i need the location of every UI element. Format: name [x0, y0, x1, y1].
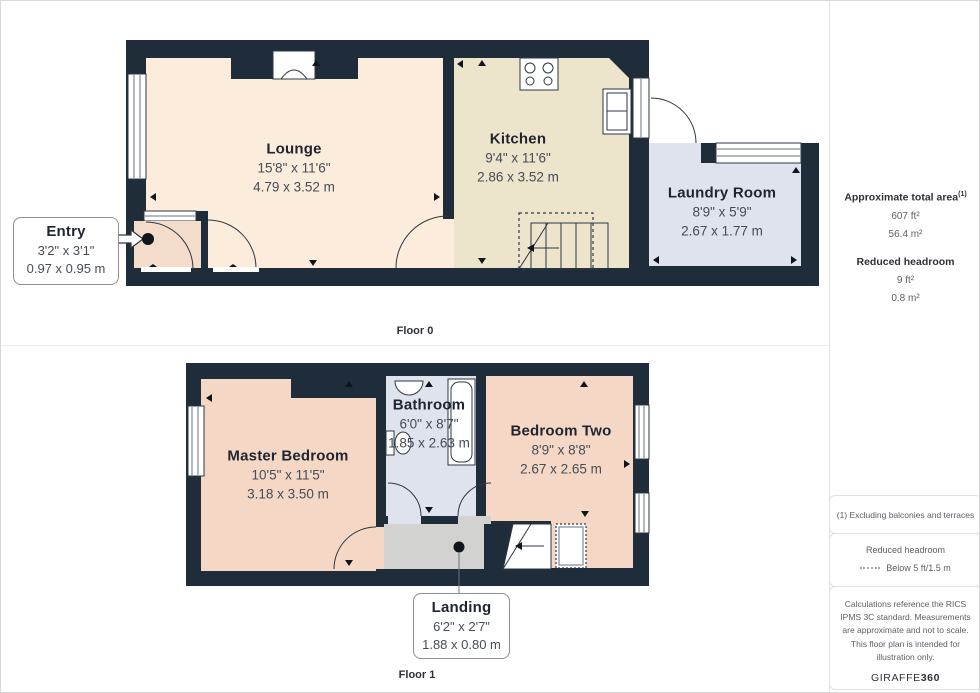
entry-callout: Entry 3'2" x 3'1" 0.97 x 0.95 m: [13, 217, 119, 285]
landing-callout: Landing 6'2" x 2'7" 1.88 x 0.80 m: [413, 593, 510, 659]
floor-divider: [1, 345, 829, 346]
dotted-line-icon: [860, 567, 880, 569]
room-label-lounge: Lounge 15'8" x 11'6" 4.79 x 3.52 m: [253, 141, 335, 198]
reduced-headroom-m: 0.8 m²: [830, 293, 980, 304]
lounge-window-icon: [128, 74, 146, 179]
room-label-laundry: Laundry Room 8'9" x 5'9" 2.67 x 1.77 m: [668, 185, 776, 242]
cupboard-icon: [556, 524, 586, 568]
laundry-window-icon: [716, 143, 801, 163]
room-label-bedroom-two: Bedroom Two 8'9" x 8'8" 2.67 x 2.65 m: [510, 423, 611, 480]
floorplan-canvas: [1, 1, 829, 693]
disclaimer-note: Calculations reference the RICS IPMS 3C …: [829, 586, 980, 690]
entry-callout-dot: [142, 233, 154, 245]
giraffe360-logo: GIRAFFE360: [830, 672, 980, 684]
floorplan-page: Lounge 15'8" x 11'6" 4.79 x 3.52 m Kitch…: [0, 0, 980, 693]
bathroom-doorway: [388, 516, 421, 524]
landing-floor: [384, 524, 484, 569]
door-threshold: [141, 267, 191, 272]
reduced-headroom-title: Reduced headroom: [830, 256, 980, 268]
room-label-bathroom: Bathroom 6'0" x 8'7" 1.85 x 2.63 m: [388, 397, 470, 454]
total-area-title: Approximate total area(1): [830, 191, 980, 204]
total-area-ft: 607 ft²: [830, 211, 980, 222]
bedroom-window2-icon: [635, 493, 649, 533]
laundry-door-arc: [651, 98, 696, 143]
room-label-kitchen: Kitchen 9'4" x 11'6" 2.86 x 3.52 m: [477, 131, 559, 188]
bedroom-doorway: [458, 516, 491, 524]
reduced-headroom-ft: 9 ft²: [830, 275, 980, 286]
floor0-plan: [111, 40, 819, 286]
entry-floor: [134, 221, 201, 268]
exclusion-note: (1) Excluding balconies and terraces: [829, 495, 980, 534]
room-label-master-bedroom: Master Bedroom 10'5" x 11'5" 3.18 x 3.50…: [227, 448, 348, 505]
info-sidebar: Approximate total area(1) 607 ft² 56.4 m…: [829, 1, 980, 693]
floor1-label: Floor 1: [399, 669, 436, 681]
headroom-legend: Reduced headroom Below 5 ft/1.5 m: [829, 533, 980, 587]
door-threshold: [213, 267, 259, 272]
master-doorway: [376, 527, 384, 569]
bedroom-window-icon: [635, 405, 649, 459]
entry-partition: [201, 221, 208, 268]
hob-icon: [520, 58, 558, 90]
floor0-label: Floor 0: [397, 325, 434, 337]
master-window-icon: [188, 406, 204, 476]
area-summary: Approximate total area(1) 607 ft² 56.4 m…: [830, 191, 980, 304]
total-area-m: 56.4 m²: [830, 229, 980, 240]
fireplace-icon: [273, 51, 315, 79]
landing-callout-dot: [454, 542, 465, 553]
lounge-kitchen-doorway: [443, 219, 454, 268]
master-wall-notch: [291, 363, 376, 398]
